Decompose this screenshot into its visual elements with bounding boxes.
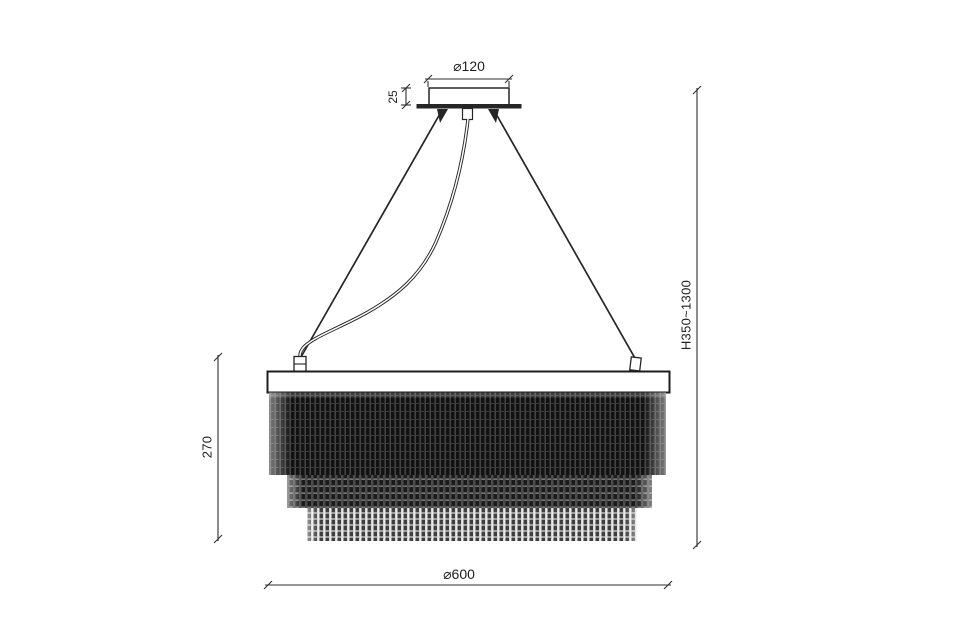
dimension-diagram: ⌀120 25 H350~1300 270 ⌀600 <box>0 0 975 622</box>
suspension-wire-left <box>301 112 441 357</box>
cable-connector-right <box>630 357 642 371</box>
dim-canopy-diameter <box>424 75 513 87</box>
height-range-label: H350~1300 <box>680 280 693 350</box>
fringe-tier-2 <box>287 475 652 508</box>
canopy-diameter-label: ⌀120 <box>453 59 485 73</box>
fringe <box>269 393 666 542</box>
fringe-tier-3 <box>307 508 637 541</box>
suspension-wire-right <box>495 112 636 360</box>
frame-band <box>268 372 670 393</box>
canopy-height-label: 25 <box>387 90 399 103</box>
diagram-line-art <box>0 0 975 622</box>
canopy-cup <box>429 88 509 105</box>
cord-grip <box>463 109 473 120</box>
ceiling-plate <box>417 104 522 109</box>
dim-body-height <box>214 353 222 543</box>
body-diameter-label: ⌀600 <box>443 567 475 581</box>
body-height-label: 270 <box>201 436 214 459</box>
cable-connector-left <box>294 357 306 372</box>
dim-canopy-height <box>401 84 411 109</box>
dim-body-diameter <box>264 581 672 589</box>
dim-height-range <box>693 86 701 549</box>
fringe-tier-1 <box>269 393 666 476</box>
power-cable <box>300 119 468 357</box>
